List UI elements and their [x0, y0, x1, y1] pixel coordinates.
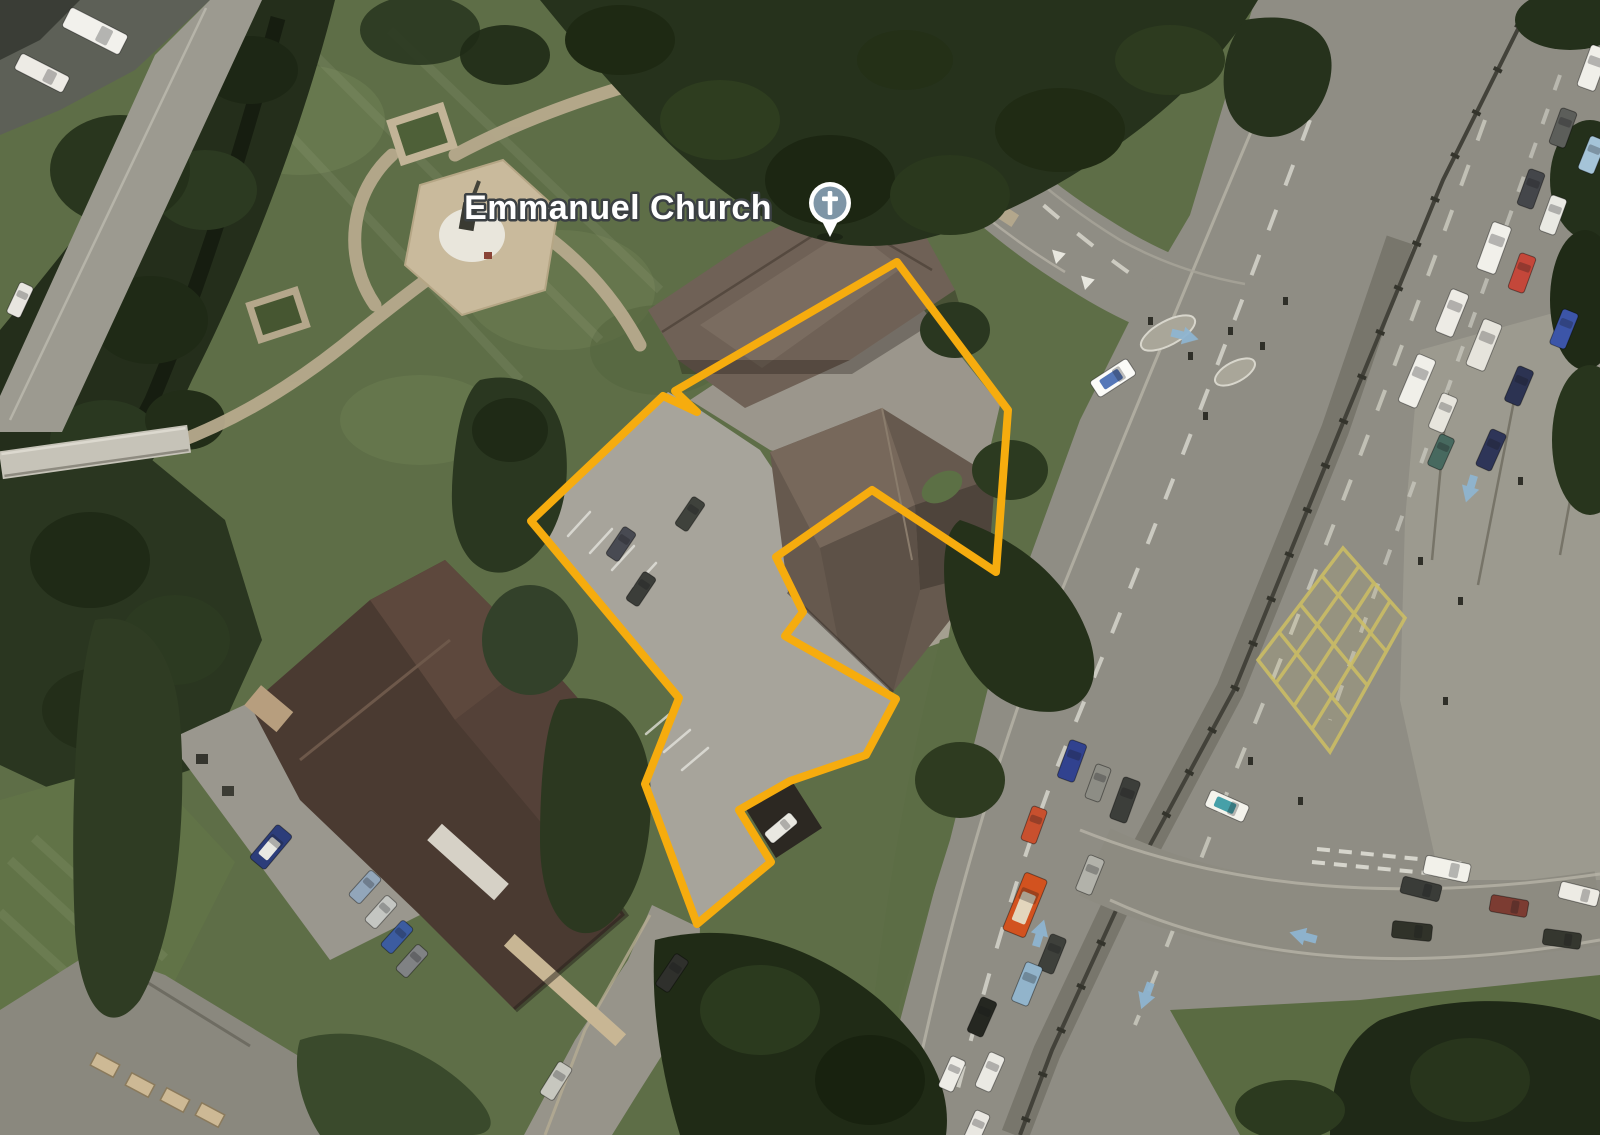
satellite-map: Emmanuel Church	[0, 0, 1600, 1135]
vehicle	[1391, 920, 1433, 941]
poi-label[interactable]: Emmanuel Church	[464, 189, 772, 227]
